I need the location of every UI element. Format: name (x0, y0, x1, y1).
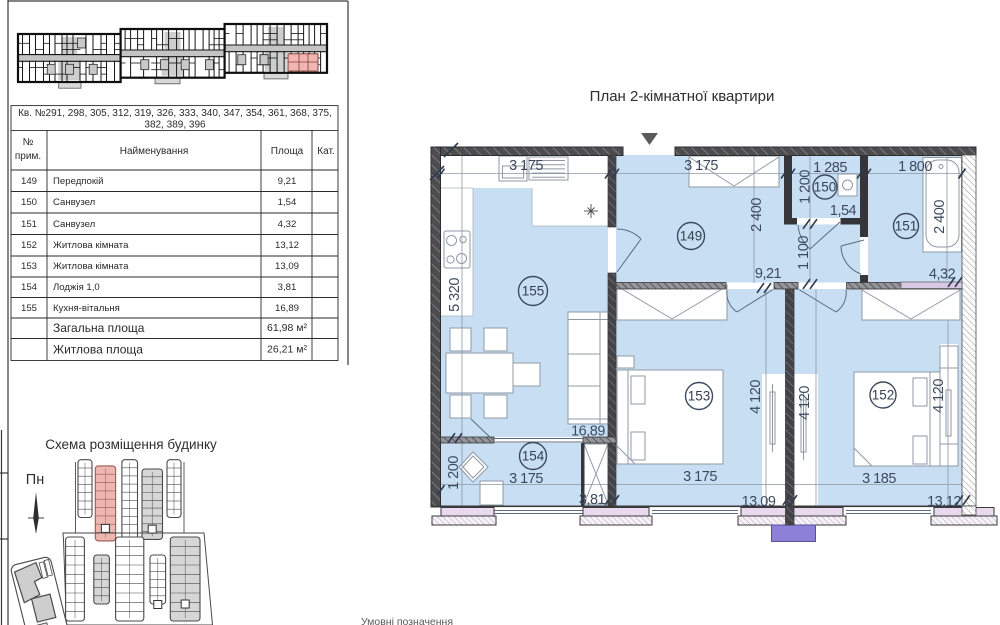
svg-text:Житлова кімната: Житлова кімната (53, 240, 129, 251)
svg-text:4 120: 4 120 (748, 380, 764, 414)
svg-text:149: 149 (21, 176, 37, 187)
svg-text:382, 389, 396: 382, 389, 396 (144, 120, 206, 131)
svg-text:прим.: прим. (15, 151, 41, 162)
svg-text:4,32: 4,32 (929, 267, 956, 283)
svg-text:154: 154 (522, 449, 545, 464)
svg-text:Передпокій: Передпокій (53, 176, 104, 187)
svg-text:Схема розміщення будинку: Схема розміщення будинку (45, 437, 217, 452)
svg-text:2 400: 2 400 (749, 198, 765, 232)
svg-text:Кат.: Кат. (317, 146, 334, 157)
svg-text:152: 152 (21, 240, 37, 251)
svg-text:3 185: 3 185 (862, 471, 896, 487)
svg-text:Пн: Пн (26, 472, 44, 488)
svg-text:Кв. №291, 298, 305, 312, 319,: Кв. №291, 298, 305, 312, 319, 326, 333, … (18, 108, 332, 119)
svg-text:13,12: 13,12 (927, 494, 961, 510)
svg-text:3 175: 3 175 (684, 158, 718, 174)
svg-text:16,89: 16,89 (571, 424, 605, 440)
svg-text:155: 155 (522, 284, 545, 299)
svg-text:Санвузел: Санвузел (53, 197, 95, 208)
svg-text:3 175: 3 175 (509, 158, 543, 174)
svg-text:№: № (23, 137, 34, 148)
svg-text:1 200: 1 200 (798, 170, 814, 204)
svg-text:2 400: 2 400 (932, 200, 948, 234)
svg-text:26,21 м²: 26,21 м² (267, 344, 307, 356)
svg-text:1 285: 1 285 (813, 160, 847, 176)
svg-text:13,12: 13,12 (275, 240, 299, 251)
svg-text:Кухня-вітальня: Кухня-вітальня (53, 303, 120, 314)
svg-text:1 100: 1 100 (796, 236, 812, 270)
svg-text:153: 153 (688, 389, 711, 404)
svg-text:4,32: 4,32 (278, 219, 297, 230)
svg-text:План 2-кімнатної квартири: План 2-кімнатної квартири (590, 88, 775, 105)
svg-text:Житлова кімната: Житлова кімната (53, 261, 129, 272)
svg-text:3 175: 3 175 (509, 471, 543, 487)
svg-text:3,81: 3,81 (579, 492, 606, 508)
svg-text:151: 151 (21, 219, 37, 230)
svg-text:Площа: Площа (271, 146, 304, 157)
svg-text:Найменування: Найменування (120, 146, 189, 157)
svg-text:150: 150 (21, 197, 37, 208)
svg-text:154: 154 (21, 282, 38, 293)
svg-text:150: 150 (814, 180, 837, 195)
svg-text:1,54: 1,54 (278, 197, 297, 208)
svg-text:153: 153 (21, 261, 37, 272)
svg-text:Санвузел: Санвузел (53, 219, 95, 230)
svg-text:1 200: 1 200 (446, 456, 462, 490)
svg-text:Загальна площа: Загальна площа (53, 321, 145, 335)
svg-text:16,89: 16,89 (275, 303, 299, 314)
svg-text:1,54: 1,54 (830, 203, 857, 219)
svg-text:4 120: 4 120 (797, 386, 813, 420)
svg-text:9,21: 9,21 (278, 176, 297, 187)
svg-text:13,09: 13,09 (742, 494, 776, 510)
svg-text:9,21: 9,21 (755, 266, 782, 282)
svg-text:152: 152 (872, 388, 895, 403)
svg-text:4 120: 4 120 (931, 379, 947, 413)
svg-text:3,81: 3,81 (278, 282, 297, 293)
svg-text:1 800: 1 800 (898, 159, 932, 175)
svg-text:3 175: 3 175 (683, 469, 717, 485)
svg-text:155: 155 (21, 303, 37, 314)
svg-text:149: 149 (680, 229, 703, 244)
svg-text:5 320: 5 320 (447, 278, 463, 312)
svg-text:Житлова площа: Житлова площа (53, 343, 143, 357)
svg-text:151: 151 (895, 219, 918, 234)
svg-text:Лоджія 1,0: Лоджія 1,0 (53, 282, 100, 293)
svg-text:Умовні позначення: Умовні позначення (361, 616, 453, 625)
svg-text:61,98 м²: 61,98 м² (267, 322, 307, 334)
svg-text:13,09: 13,09 (275, 261, 299, 272)
